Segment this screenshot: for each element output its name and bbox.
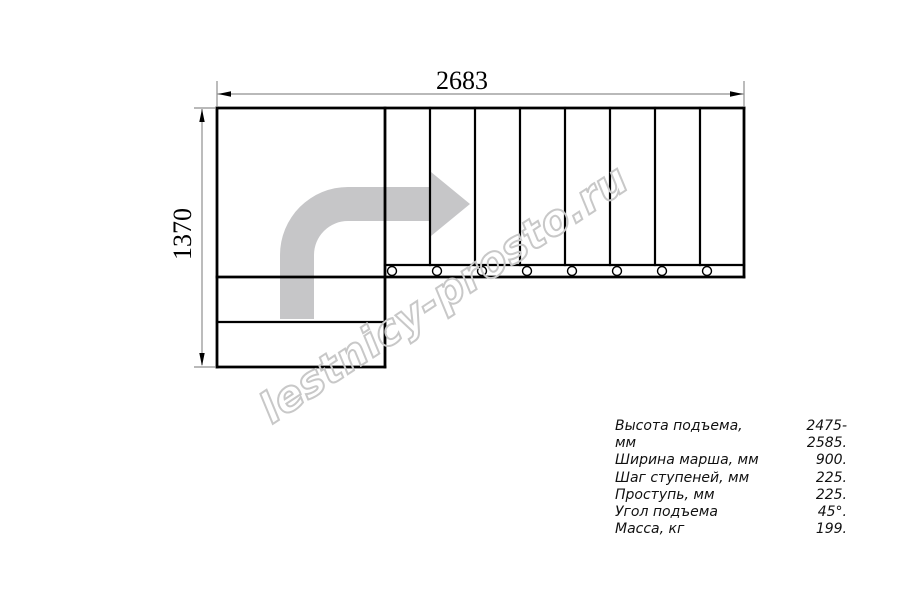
spec-row-flight-width: Ширина марша, мм 900.	[615, 452, 847, 469]
spec-label: Угол подъема	[615, 504, 718, 521]
spec-row-height: Высота подъема, мм 2475-2585.	[615, 418, 847, 452]
spec-row-step-rise: Шаг ступеней, мм 225.	[615, 470, 847, 487]
arrowhead-left-icon	[218, 91, 231, 97]
spec-value: 199.	[816, 521, 847, 538]
dimension-lines	[194, 81, 744, 367]
baluster-circle	[388, 267, 397, 276]
spec-value: 45°.	[818, 504, 847, 521]
spec-label: Масса, кг	[615, 521, 684, 538]
spec-value: 2475-2585.	[767, 418, 847, 452]
stair-drawing-canvas: 2683 1370 lestnicy-prosto.ru Высота подъ…	[0, 0, 900, 600]
spec-value: 900.	[816, 452, 847, 469]
baluster-circle	[703, 267, 712, 276]
width-dimension-label: 2683	[436, 66, 488, 95]
spec-label: Проступь, мм	[615, 487, 715, 504]
spec-label: Ширина марша, мм	[615, 452, 759, 469]
spec-row-tread-depth: Проступь, мм 225.	[615, 487, 847, 504]
baluster-circle	[568, 267, 577, 276]
spec-label: Шаг ступеней, мм	[615, 470, 749, 487]
height-dimension-label: 1370	[168, 208, 197, 260]
arrowhead-down-icon	[199, 353, 204, 366]
spec-value: 225.	[816, 470, 847, 487]
baluster-circle	[658, 267, 667, 276]
specs-table: Высота подъема, мм 2475-2585. Ширина мар…	[615, 418, 847, 538]
dimension-arrowheads	[199, 91, 743, 366]
arrowhead-right-icon	[730, 91, 743, 97]
arrowhead-up-icon	[199, 109, 204, 122]
spec-row-angle: Угол подъема 45°.	[615, 504, 847, 521]
spec-row-mass: Масса, кг 199.	[615, 521, 847, 538]
spec-value: 225.	[816, 487, 847, 504]
spec-label: Высота подъема, мм	[615, 418, 767, 452]
baluster-circle	[613, 267, 622, 276]
